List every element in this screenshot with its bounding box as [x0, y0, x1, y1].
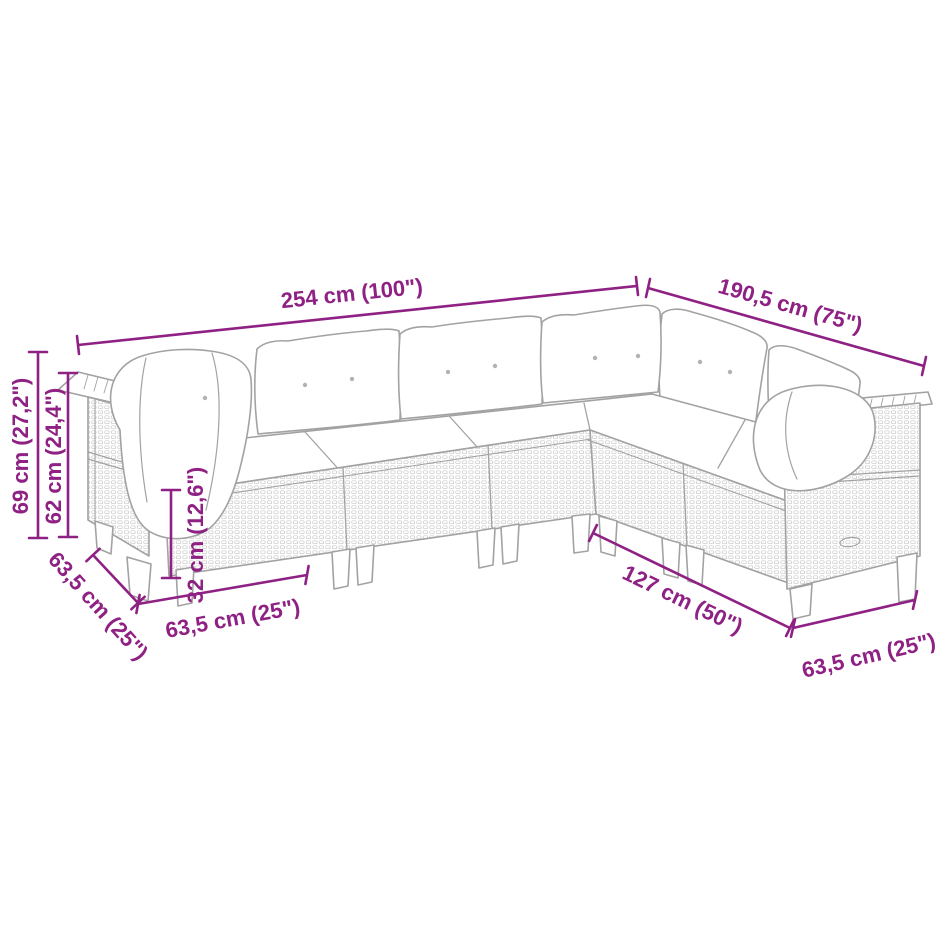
dim-total-height-label: 69 cm (27,2") — [8, 378, 33, 514]
dim-back-length-label: 254 cm (100") — [280, 273, 424, 313]
dim-right-seat-width-label: 63,5 cm (25") — [799, 628, 938, 683]
right-armrest-leg — [897, 553, 917, 602]
sofa-dimension-diagram: 254 cm (100") 190,5 cm (75") 69 cm (27,2… — [0, 0, 947, 947]
diagram-canvas: 254 cm (100") 190,5 cm (75") 69 cm (27,2… — [0, 0, 947, 947]
dim-seat-height-label: 32 cm (12,6") — [183, 467, 208, 603]
right-armrest-leg — [790, 584, 812, 619]
dim-front-length-label: 127 cm (50") — [619, 560, 747, 639]
dim-back-height-label: 62 cm (24,4") — [41, 388, 66, 524]
